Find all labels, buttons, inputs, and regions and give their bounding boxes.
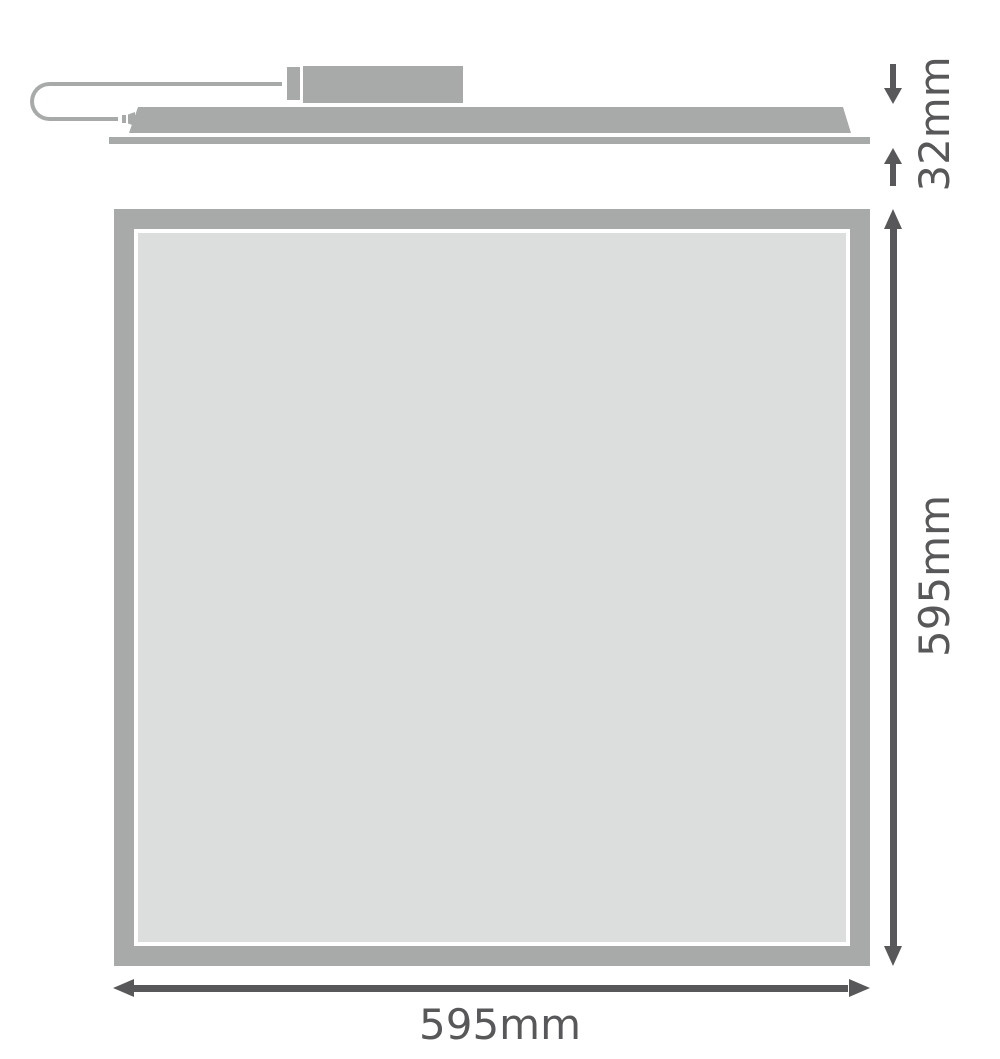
arrow-left-icon bbox=[113, 979, 134, 997]
height-arrow-down-stem bbox=[890, 64, 896, 90]
panel-side-profile bbox=[129, 107, 851, 133]
power-cable-upper-segment bbox=[82, 82, 282, 86]
arrow-right-icon bbox=[849, 979, 870, 997]
panel-height-dimension-label: 595mm bbox=[909, 476, 959, 676]
cable-connector bbox=[122, 115, 126, 123]
driver-endcap bbox=[287, 67, 300, 100]
height-arrow-down-icon bbox=[884, 88, 902, 104]
power-cable-loop bbox=[30, 82, 86, 121]
arrow-up-icon bbox=[884, 209, 902, 229]
height-arrow-up-icon bbox=[884, 148, 902, 164]
vertical-dimension-line bbox=[890, 227, 897, 948]
panel-light-face bbox=[138, 233, 846, 942]
panel-width-dimension-label: 595mm bbox=[380, 999, 620, 1049]
led-panel-dimension-diagram: 32mm 595mm 595mm bbox=[0, 0, 1000, 1059]
side-height-dimension-label: 32mm bbox=[909, 49, 959, 199]
power-cable-lower-segment bbox=[82, 117, 118, 121]
driver-box bbox=[303, 66, 463, 103]
arrow-down-icon bbox=[884, 946, 902, 966]
horizontal-dimension-line bbox=[132, 985, 848, 992]
panel-front bbox=[114, 209, 870, 966]
panel-frame-flange bbox=[109, 137, 870, 144]
height-arrow-up-stem bbox=[890, 164, 896, 186]
